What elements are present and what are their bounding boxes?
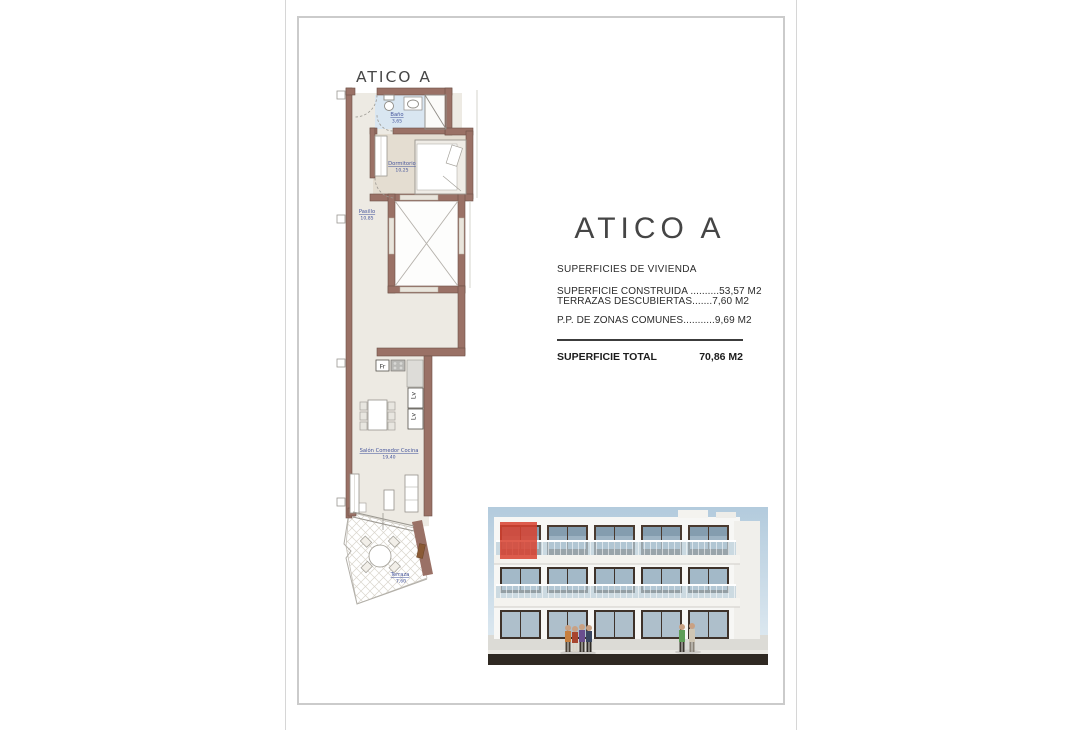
- unit-title: ATICO A: [557, 212, 743, 246]
- terrace-table-icon: [369, 545, 391, 567]
- room-label-pasillo: Pasillo: [359, 209, 375, 215]
- spec-row-terrazas: TERRAZAS DESCUBIERTAS....... 7,60 M2: [557, 297, 743, 307]
- counter-icon: [407, 360, 423, 387]
- dishwasher-label: Lv: [411, 413, 418, 420]
- room-label-dormitorio: Dormitorio: [388, 161, 416, 167]
- svg-text:10,85: 10,85: [360, 216, 373, 222]
- cooktop-icon: [391, 360, 405, 371]
- toilet-tank-icon: [384, 95, 394, 100]
- surface-spec-block: ATICO A SUPERFICIES DE VIVIENDA SUPERFIC…: [557, 212, 743, 363]
- dining-table-icon: [368, 400, 387, 430]
- spec-row-comunes: P.P. DE ZONAS COMUNES........... 9,69 M2: [557, 316, 743, 326]
- svg-text:19,40: 19,40: [382, 455, 395, 461]
- middle-floor-windows: [496, 567, 736, 598]
- unit-highlight-overlay: [500, 522, 537, 559]
- spec-heading: SUPERFICIES DE VIVIENDA: [557, 264, 743, 275]
- dark-plinth-band: [488, 654, 768, 665]
- building-elevation-render: [488, 507, 768, 665]
- svg-text:10,25: 10,25: [395, 168, 408, 174]
- washer-label: Lv: [411, 392, 418, 399]
- spec-row-value: 7,60 M2: [712, 297, 749, 307]
- spec-total-label: SUPERFICIE TOTAL: [557, 351, 657, 363]
- spec-row-value: 9,69 M2: [715, 316, 752, 326]
- svg-text:7,60: 7,60: [396, 579, 406, 585]
- wall-pillar-markers: [337, 91, 345, 506]
- sink-icon: [408, 100, 419, 108]
- toilet-icon: [385, 102, 394, 111]
- railing-top-rail: [496, 584, 736, 586]
- room-label-terraza: Terraza: [390, 572, 410, 578]
- spec-divider: [557, 339, 743, 341]
- spec-row-label: TERRAZAS DESCUBIERTAS.......: [557, 297, 712, 307]
- coffee-table-icon: [384, 490, 394, 510]
- spec-total-row: SUPERFICIE TOTAL 70,86 M2: [557, 351, 743, 363]
- bed-icon: [415, 140, 466, 194]
- spec-row-label: P.P. DE ZONAS COMUNES...........: [557, 316, 715, 326]
- floor-plan: ATICO A: [325, 60, 480, 622]
- room-label-salon: Salón Comedor Cocina: [360, 447, 419, 454]
- plan-title: ATICO A: [356, 68, 432, 86]
- svg-text:3,65: 3,65: [392, 119, 402, 125]
- room-label-bano: Baño: [390, 112, 403, 118]
- spec-total-value: 70,86 M2: [699, 351, 743, 363]
- sofa-icon: [405, 475, 418, 512]
- ground: [488, 635, 768, 665]
- fridge-label: Fr: [380, 364, 386, 371]
- floor-slab: [494, 598, 740, 607]
